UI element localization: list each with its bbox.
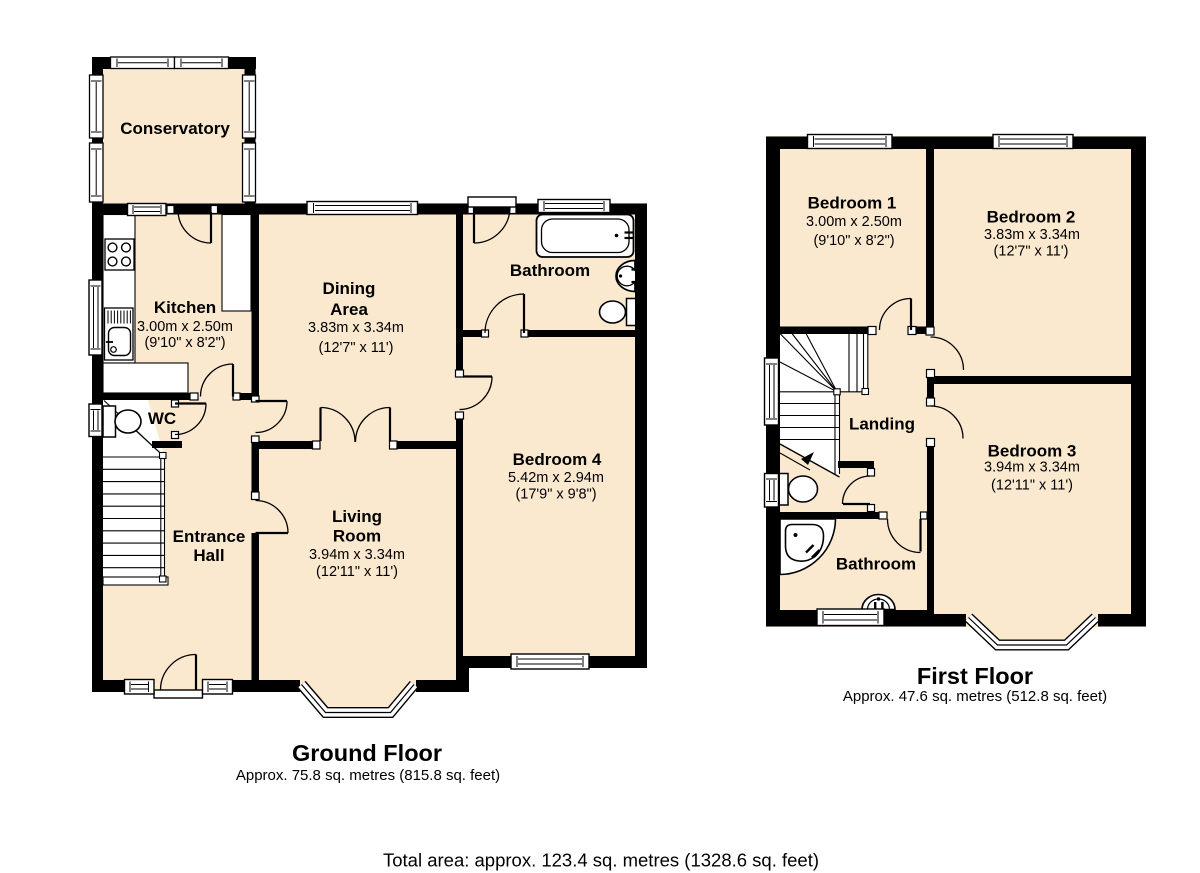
svg-text:Area: Area [330,300,368,319]
svg-text:Hall: Hall [193,546,224,565]
svg-text:(9'10" x 8'2"): (9'10" x 8'2") [813,233,894,249]
svg-text:Room: Room [333,527,381,546]
svg-text:3.94m x 3.34m: 3.94m x 3.34m [309,547,405,563]
svg-text:Living: Living [332,507,382,526]
svg-text:(9'10" x 8'2"): (9'10" x 8'2") [144,335,225,351]
svg-text:3.83m x 3.34m: 3.83m x 3.34m [984,227,1080,243]
svg-text:Bathroom: Bathroom [510,261,590,280]
svg-text:(12'7" x 11'): (12'7" x 11') [994,244,1069,260]
svg-text:Bedroom 1: Bedroom 1 [808,194,897,213]
svg-text:Dining: Dining [323,279,376,298]
svg-text:Bathroom: Bathroom [836,555,916,574]
svg-text:Approx. 47.6 sq. metres (512.: Approx. 47.6 sq. metres (512.8 sq. feet) [843,688,1107,705]
svg-text:(12'11" x 11'): (12'11" x 11') [316,564,398,580]
svg-text:Total area: approx. 123.4 sq.: Total area: approx. 123.4 sq. metres (13… [383,850,819,871]
svg-text:3.00m x 2.50m: 3.00m x 2.50m [137,319,233,335]
svg-text:Bedroom 3: Bedroom 3 [988,442,1077,461]
svg-text:WC: WC [148,409,176,428]
svg-text:3.94m x 3.34m: 3.94m x 3.34m [984,460,1080,476]
svg-text:Ground Floor: Ground Floor [292,740,442,766]
svg-text:Bedroom 4: Bedroom 4 [513,450,602,469]
svg-text:5.42m x 2.94m: 5.42m x 2.94m [508,470,604,486]
svg-text:Landing: Landing [849,415,915,434]
svg-text:Kitchen: Kitchen [154,298,216,317]
svg-text:Entrance: Entrance [173,527,246,546]
svg-text:Conservatory: Conservatory [120,119,230,138]
svg-text:(12'7" x 11'): (12'7" x 11') [319,340,394,356]
svg-text:3.83m x 3.34m: 3.83m x 3.34m [308,320,404,336]
svg-text:3.00m x 2.50m: 3.00m x 2.50m [806,214,902,230]
svg-text:(17'9" x 9'8"): (17'9" x 9'8") [515,487,596,503]
svg-text:Approx. 75.8 sq. metres (815.: Approx. 75.8 sq. metres (815.8 sq. feet) [236,767,500,784]
svg-text:Bedroom 2: Bedroom 2 [987,208,1076,227]
svg-text:First Floor: First Floor [917,663,1033,689]
svg-text:(12'11" x 11'): (12'11" x 11') [991,478,1073,494]
